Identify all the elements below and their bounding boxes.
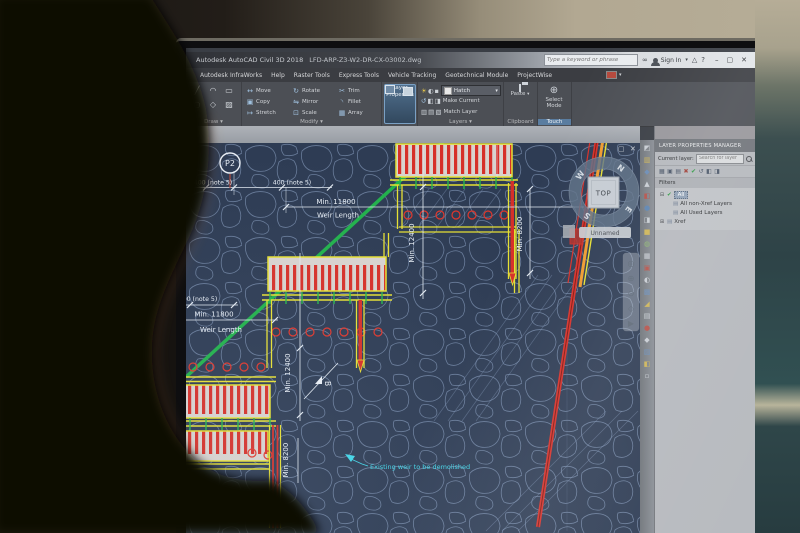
person-silhouette xyxy=(0,0,800,533)
head-and-shoulder xyxy=(0,0,320,533)
photo-of-monitor: Autodesk AutoCAD Civil 3D 2018 LFD-ARP-Z… xyxy=(0,0,800,533)
